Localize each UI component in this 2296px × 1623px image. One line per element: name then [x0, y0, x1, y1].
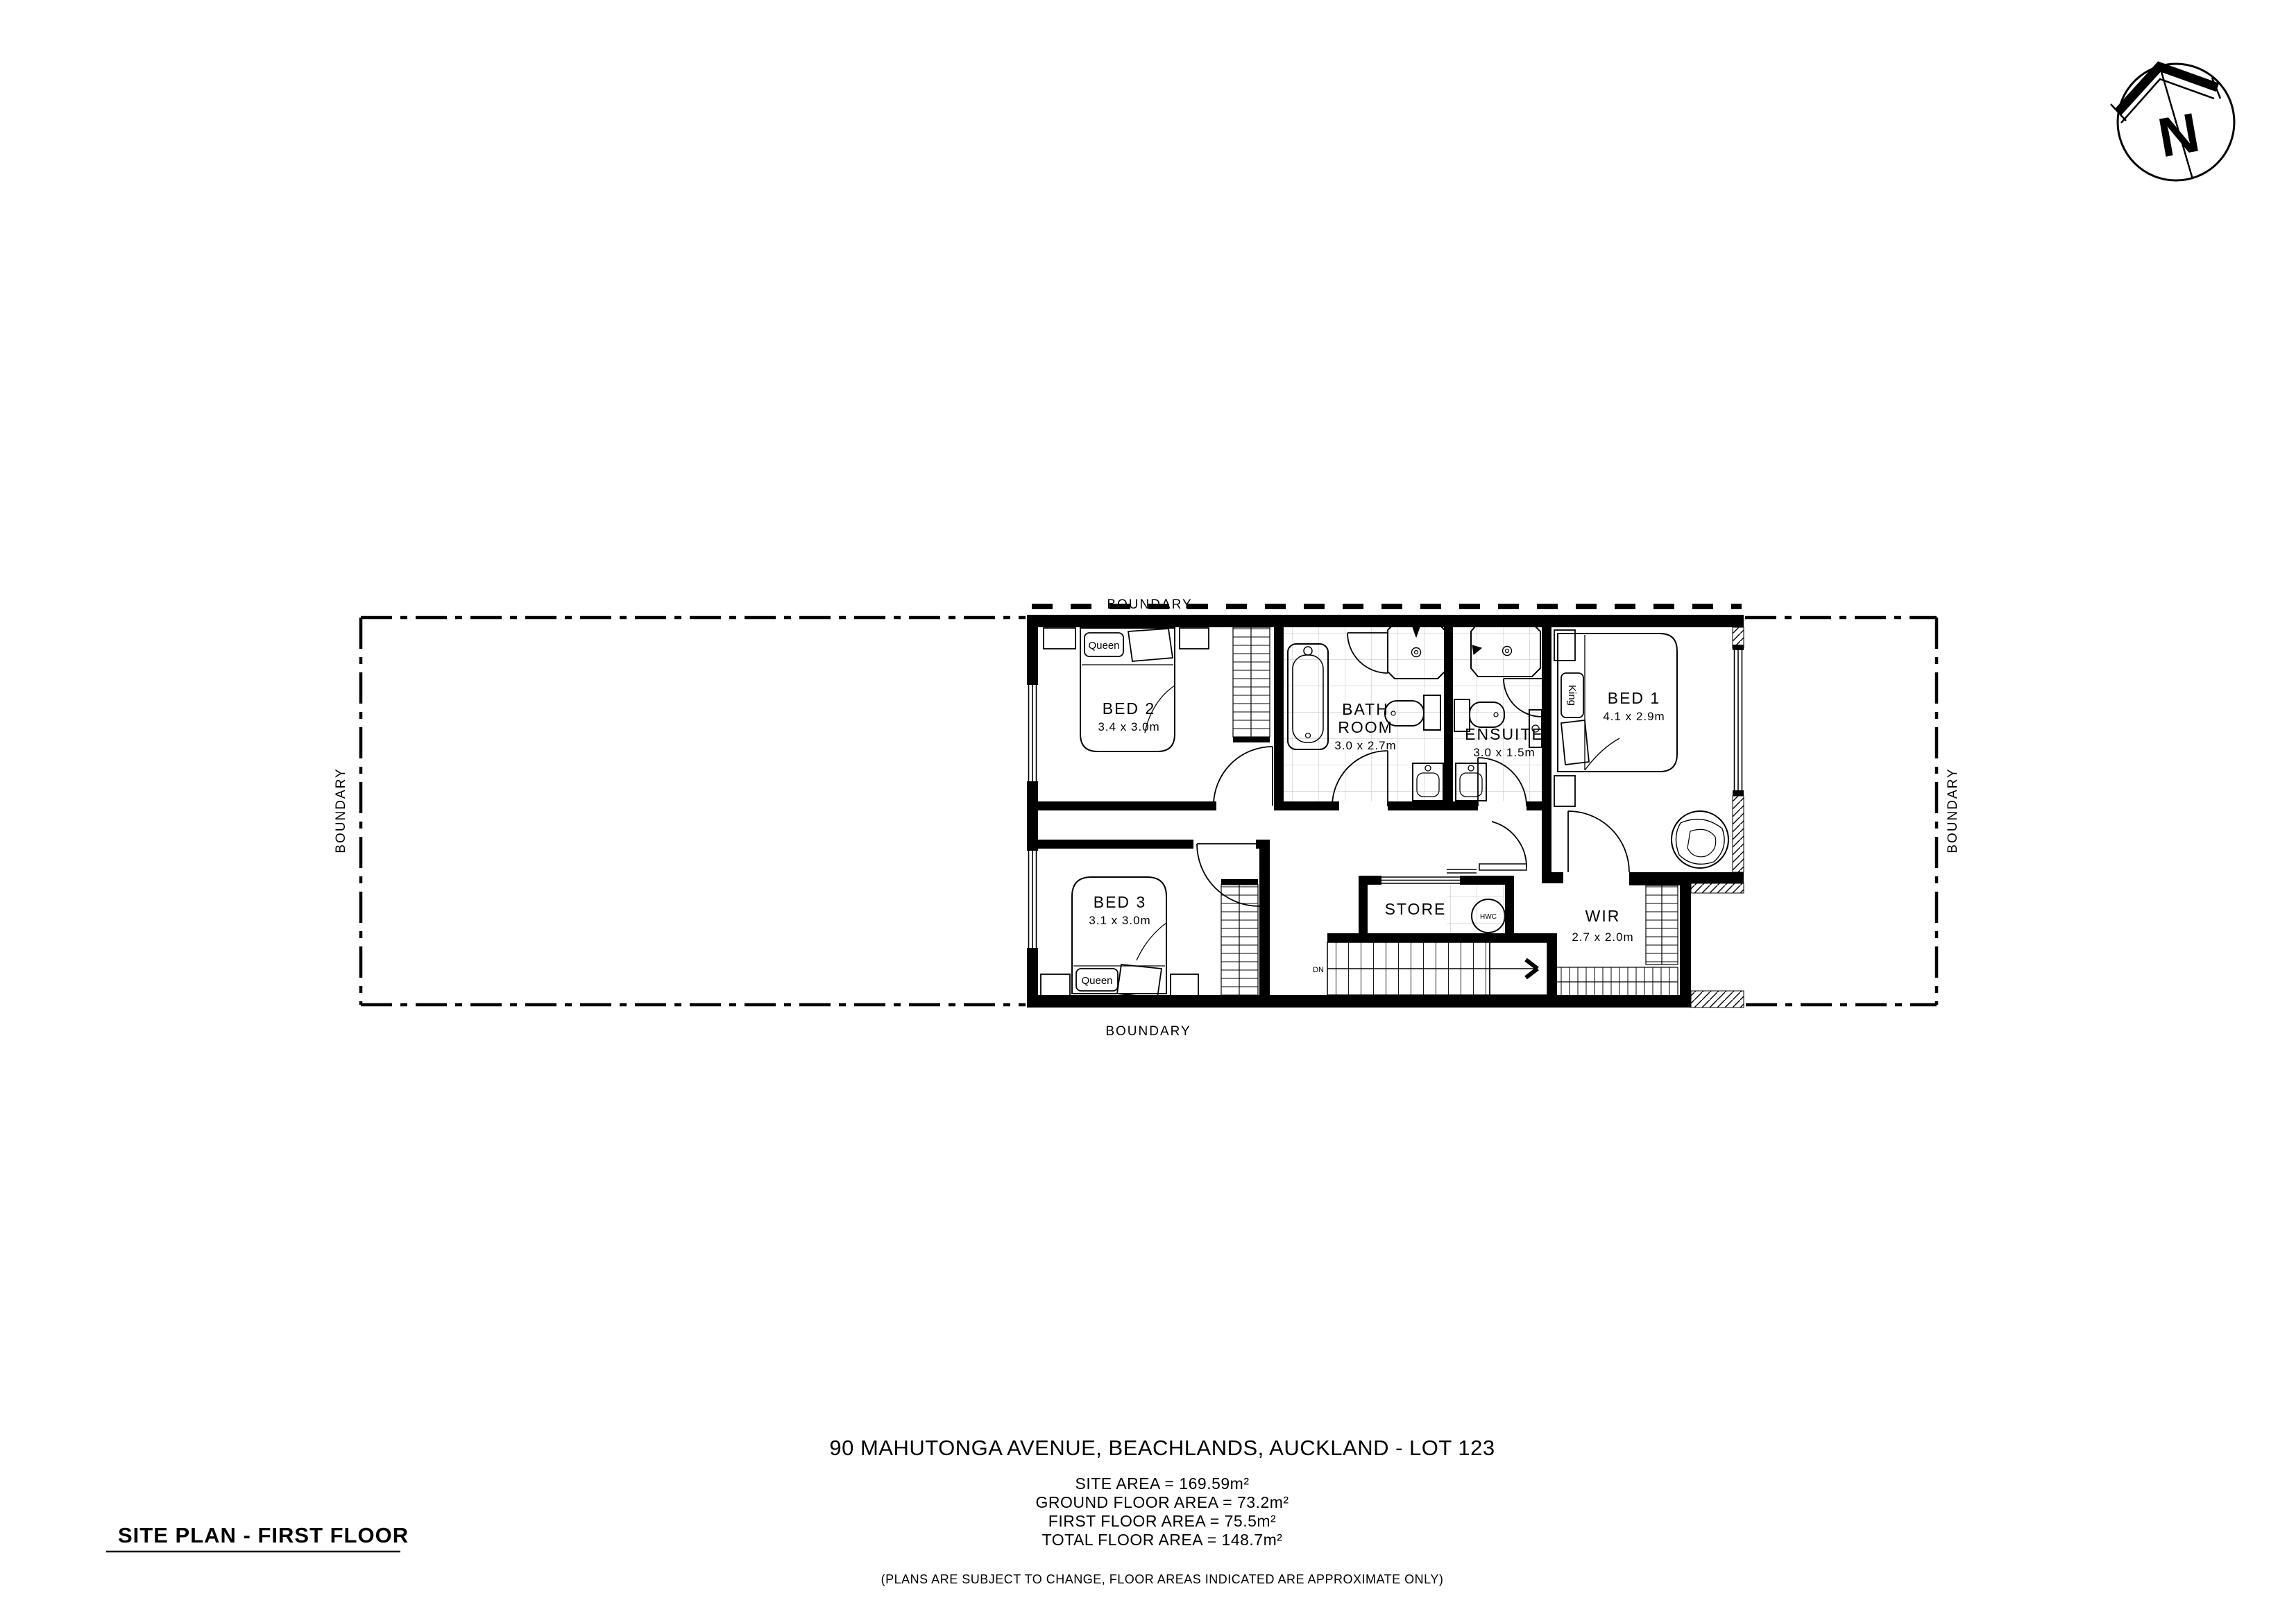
bed1-side-table-bottom [1554, 776, 1575, 806]
window-bed1 [1735, 650, 1742, 790]
first-floor-area: FIRST FLOOR AREA = 75.5m² [1048, 1512, 1276, 1530]
total-floor-area: TOTAL FLOOR AREA = 148.7m² [1042, 1531, 1283, 1549]
compass-north-letter: N [2154, 101, 2204, 169]
boundary-label-right: BOUNDARY [1946, 767, 1960, 853]
disclaimer: (PLANS ARE SUBJECT TO CHANGE, FLOOR AREA… [881, 1572, 1444, 1586]
window-bed2 [1029, 685, 1037, 781]
wall-wir-west [1547, 933, 1557, 1008]
wall-bed2-hall [1027, 801, 1216, 810]
wir-name: WIR [1585, 907, 1621, 925]
bed1-armchair [1672, 811, 1728, 868]
wir-dims: 2.7 x 2.0m [1572, 931, 1633, 944]
wall-bed3-north [1027, 840, 1193, 849]
wall-bath-hall [1388, 801, 1444, 810]
store-name: STORE [1385, 900, 1447, 918]
bed1-name: BED 1 [1608, 689, 1660, 707]
wall-hall-pier [1284, 801, 1339, 810]
hatch-wall-east [1733, 796, 1744, 872]
wall-bed3-east [1259, 840, 1270, 1008]
hatch-wall-ne [1733, 627, 1744, 648]
stair-balustrade [1447, 869, 1477, 873]
window-bed3 [1029, 851, 1037, 948]
bed3-name: BED 3 [1094, 893, 1146, 911]
ground-floor-area: GROUND FLOOR AREA = 73.2m² [1035, 1493, 1289, 1511]
floor-plan-sheet: BOUNDARY BOUNDARY BOUNDARY BOUNDARY [0, 0, 2296, 1623]
bed2-pillow-label: Queen [1088, 640, 1119, 652]
robe-wir-east [1646, 885, 1678, 965]
wall-store-east [1505, 876, 1514, 933]
door-wir [1479, 822, 1527, 870]
footer-block: 90 MAHUTONGA AVENUE, BEACHLANDS, AUCKLAN… [829, 1436, 1495, 1586]
site-area: SITE AREA = 169.59m² [1075, 1475, 1250, 1493]
door-bed2 [1214, 747, 1273, 806]
wall-ensuite-hall-a [1453, 801, 1478, 810]
bathroom-name-2: ROOM [1338, 718, 1393, 736]
bed3-pillow-2 [1117, 965, 1162, 998]
hwc-label: HWC [1480, 913, 1497, 921]
wall-ensuite-bed1 [1542, 627, 1551, 872]
page-title: SITE PLAN - FIRST FLOOR [118, 1523, 409, 1547]
stairs: DN [1313, 942, 1547, 995]
bed1-dims: 4.1 x 2.9m [1603, 710, 1665, 723]
robe-bed3 [1221, 885, 1258, 996]
sheet-title: SITE PLAN - FIRST FLOOR [106, 1523, 409, 1552]
bathroom-name-1: BATH [1342, 700, 1389, 718]
door-bed1 [1568, 811, 1629, 872]
hatch-wall-se-upper [1691, 883, 1744, 893]
wall-bed2-bath [1274, 627, 1284, 810]
stair-down-label: DN [1313, 966, 1324, 974]
ensuite-name: ENSUITE [1465, 725, 1544, 743]
bed2-dims: 3.4 x 3.0m [1098, 720, 1159, 733]
wall-wir-north [1629, 876, 1680, 885]
window-store [1381, 877, 1461, 883]
wall-south [1027, 995, 1691, 1008]
boundary-label-left: BOUNDARY [334, 767, 348, 853]
hatch-wall-se-lower [1691, 991, 1744, 1008]
wall-ensuite-hall-b [1527, 801, 1551, 810]
north-compass: N [2111, 64, 2234, 180]
boundary-label-bottom: BOUNDARY [1105, 1024, 1191, 1039]
wall-store-north-a [1359, 876, 1381, 885]
bathroom-dims: 3.0 x 2.7m [1334, 739, 1396, 752]
bed2-side-table-right [1180, 628, 1209, 649]
ensuite-dims: 3.0 x 1.5m [1473, 746, 1535, 759]
wall-bed1-south-a [1542, 872, 1563, 883]
robe-wir-south [1556, 967, 1678, 996]
bed2-pillow-2 [1128, 629, 1173, 661]
wall-wir-east [1680, 872, 1691, 1008]
bed2-name: BED 2 [1103, 699, 1155, 717]
bed2-side-table-left [1044, 628, 1075, 649]
address-line: 90 MAHUTONGA AVENUE, BEACHLANDS, AUCKLAN… [829, 1436, 1495, 1460]
plan-drawing: BOUNDARY BOUNDARY BOUNDARY BOUNDARY [0, 0, 2296, 1623]
wall-stairs-north [1327, 933, 1552, 942]
bed3-pillow-label: Queen [1081, 975, 1112, 987]
wall-north [1027, 615, 1744, 627]
bed3-side-table-left [1041, 974, 1070, 996]
robe-bed2 [1233, 627, 1270, 737]
bed1-pillow-label: King [1566, 685, 1578, 706]
bed3-side-table-right [1171, 974, 1198, 996]
wall-west-a [1027, 615, 1038, 684]
bed3-dims: 3.1 x 3.0m [1089, 914, 1150, 927]
